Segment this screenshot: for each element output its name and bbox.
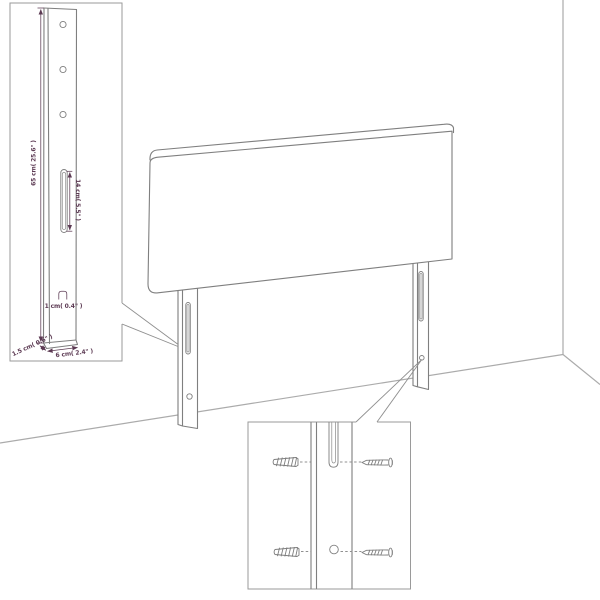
floor-line-right (563, 355, 600, 385)
post-slot-inner (62, 173, 65, 230)
post-left-edge (44, 8, 45, 343)
screw-head (389, 458, 393, 467)
dim-slot-width: 1 cm( 0.4" ) (45, 291, 83, 310)
left-leg (178, 280, 198, 429)
hardware-post (311, 423, 352, 589)
screw-bottom (362, 548, 392, 557)
callout-leader-lines (122, 303, 422, 422)
post-slot (61, 170, 67, 233)
headboard-front-face (148, 131, 452, 293)
dim-bottom: 1.5 cm( 0.6" ) 6 cm( 2.4" ) (11, 333, 94, 359)
dim-slot-length-label: 14 cm( 5.5" ) (74, 179, 81, 221)
screw-top (362, 458, 392, 467)
wall-plug-top (273, 458, 298, 467)
hardware-inset-leader-right (377, 360, 422, 423)
post-hole-2 (60, 66, 66, 72)
leg-inset-leader-top (122, 303, 178, 344)
headboard-panel (148, 124, 454, 293)
dim-thickness-label: 1.5 cm( 0.6" ) (11, 333, 54, 358)
dim-height-label: 65 cm( 25.6" ) (31, 140, 38, 186)
leg-detail-post (44, 8, 78, 349)
dim-height: 65 cm( 25.6" ) (31, 8, 45, 343)
dim-slot-width-bracket (59, 291, 67, 299)
dim-slot-length: 14 cm( 5.5" ) (67, 171, 81, 231)
diagram-canvas: 65 cm( 25.6" ) 14 cm( 5.5" ) 1 cm( 0.4" … (0, 0, 600, 600)
post-hole-1 (60, 21, 66, 27)
right-leg-slot (419, 272, 423, 322)
left-leg-slot (186, 303, 191, 355)
leg-detail-inset: 65 cm( 25.6" ) 14 cm( 5.5" ) 1 cm( 0.4" … (10, 3, 122, 361)
leg-inset-leader-bottom (122, 324, 178, 347)
dim-slot-width-label: 1 cm( 0.4" ) (45, 303, 83, 310)
screw-head (389, 548, 393, 557)
post-face-line (48, 9, 50, 344)
post-right-edge (76, 10, 77, 341)
post-top-edge (44, 8, 77, 10)
headboard-dimension-diagram: 65 cm( 25.6" ) 14 cm( 5.5" ) 1 cm( 0.4" … (0, 0, 600, 600)
screw-threads (368, 550, 383, 555)
screw-threads (368, 460, 383, 465)
hw-post-hole (330, 545, 339, 554)
hw-post-slot-inner (332, 423, 336, 464)
floor-line-left (0, 355, 563, 444)
hw-post-slot (329, 423, 338, 468)
hardware-inset-leader-left (356, 360, 422, 423)
hardware-detail-inset (248, 422, 411, 589)
wall-plug-bottom (274, 548, 299, 557)
post-hole-3 (60, 111, 66, 117)
